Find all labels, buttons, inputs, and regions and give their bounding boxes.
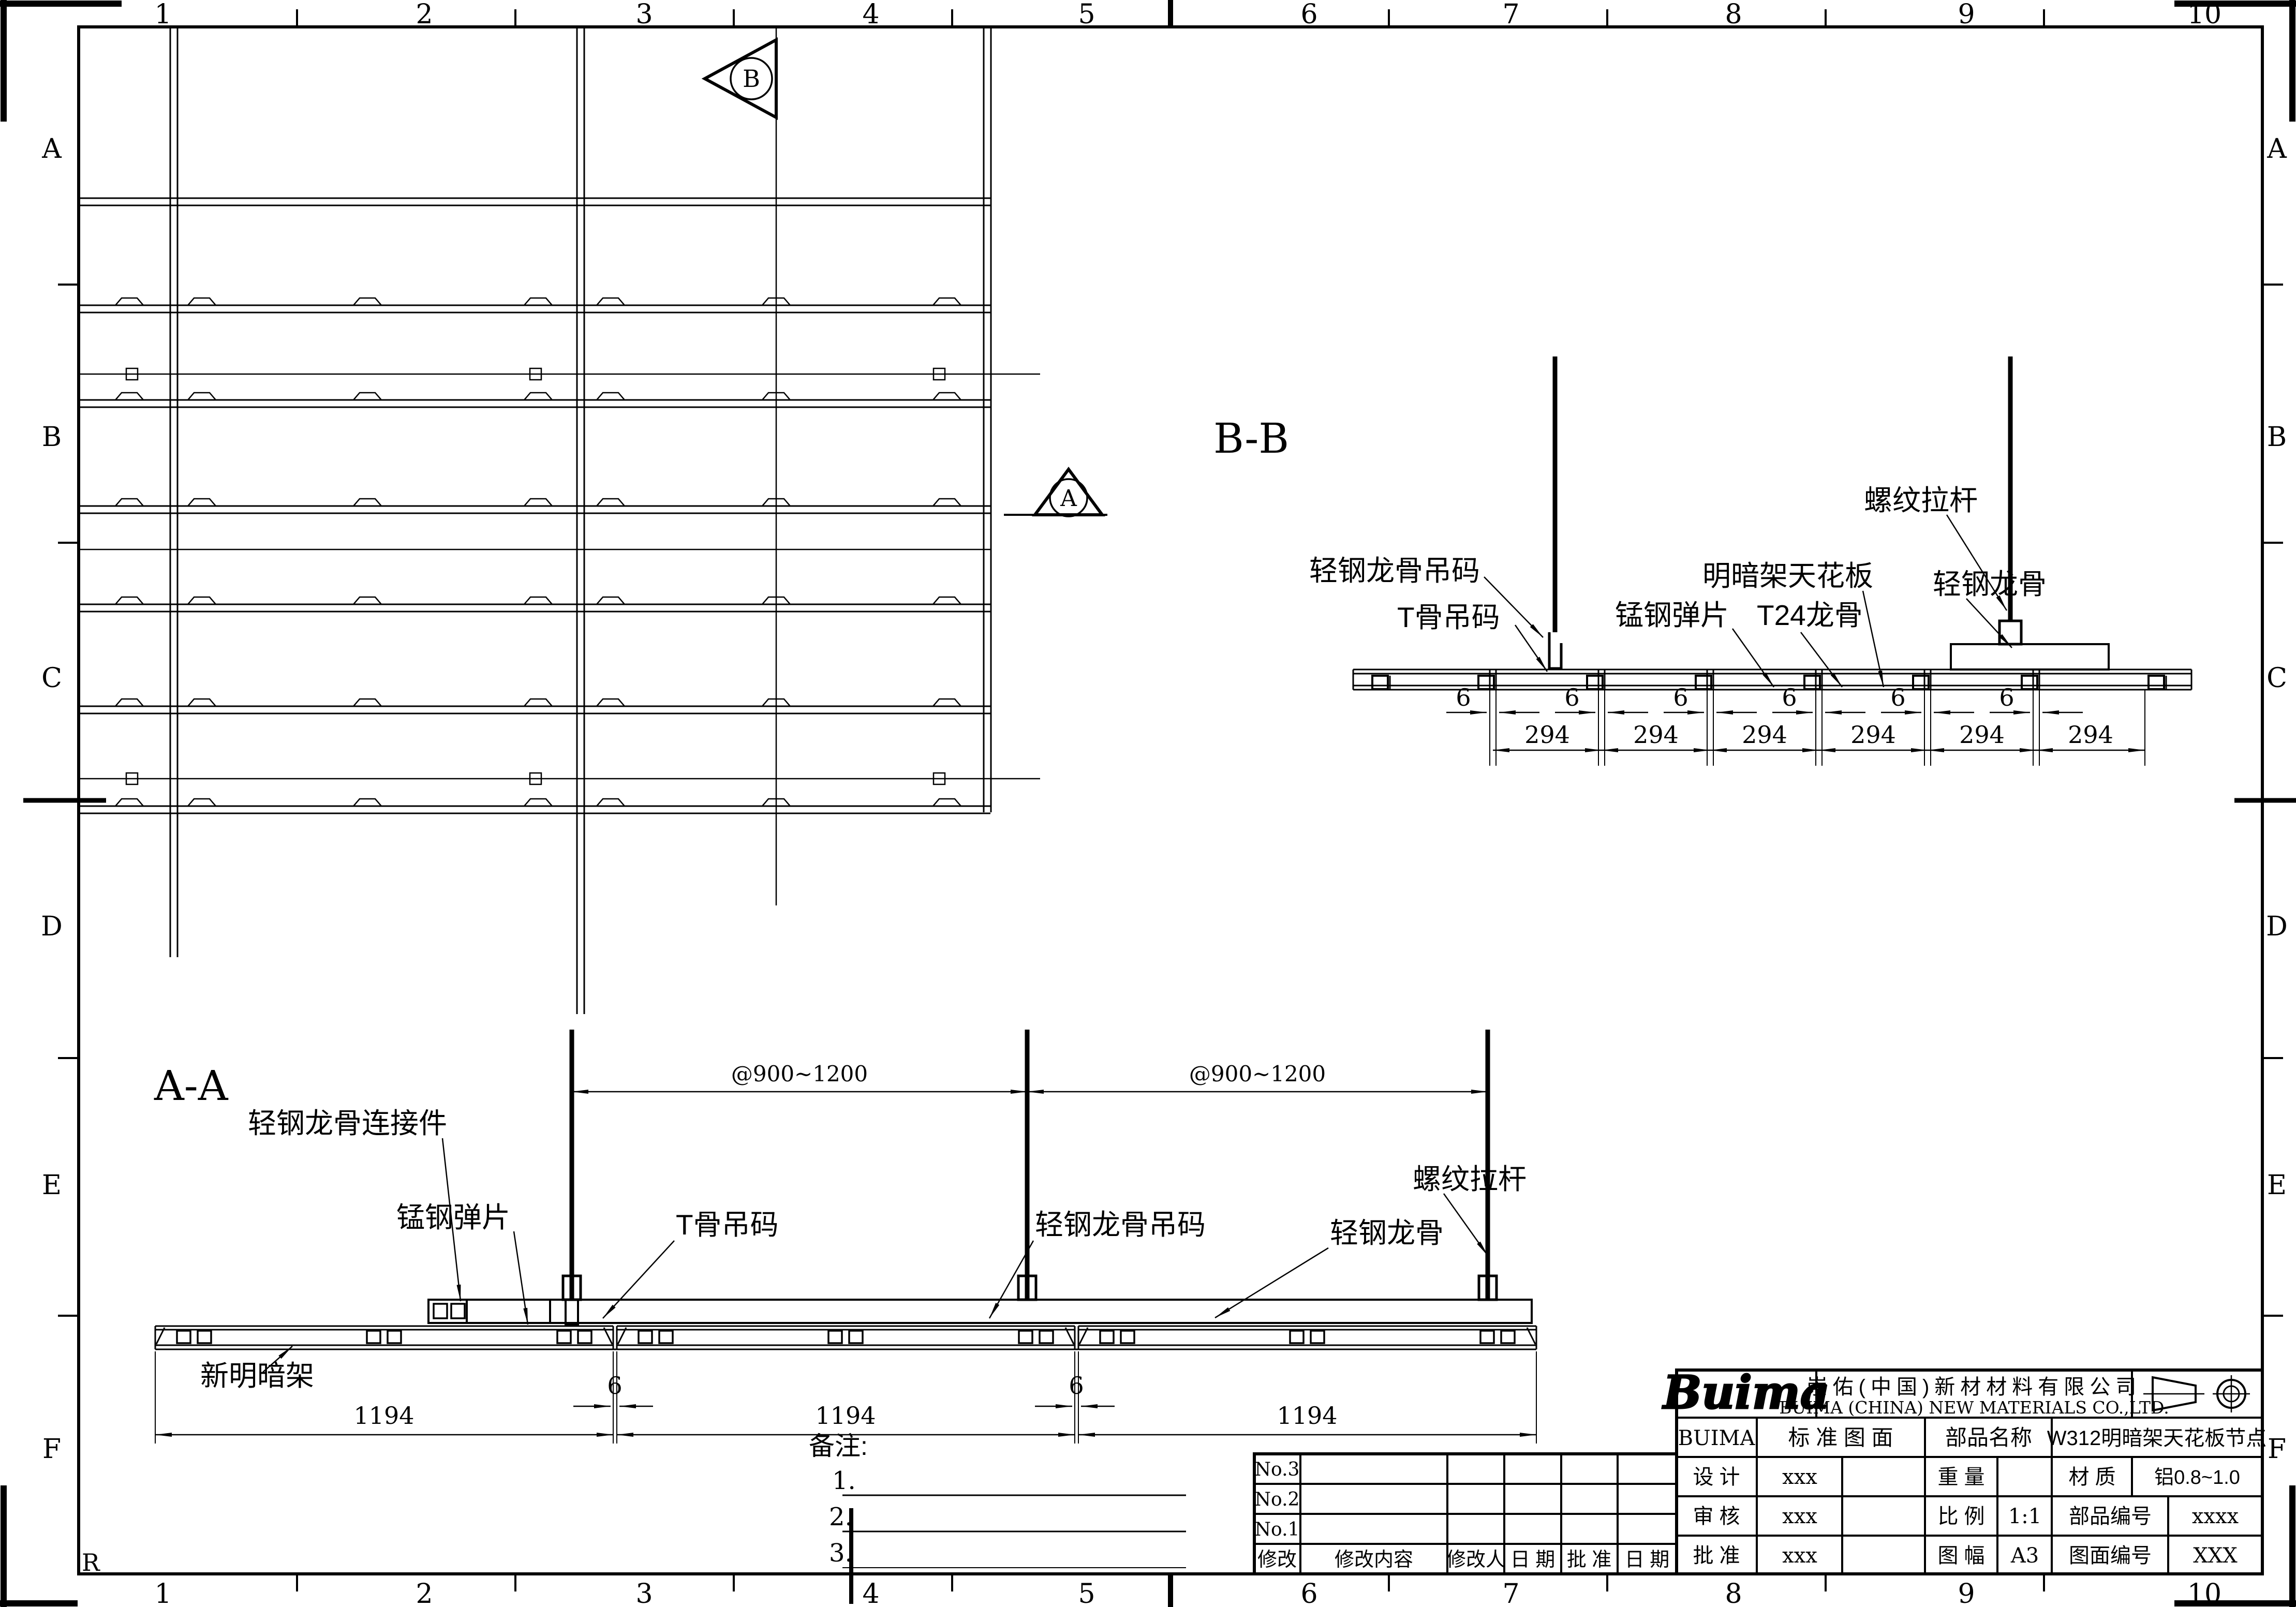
dim-text-6: 6 — [1999, 683, 2014, 711]
zone-col-label: 3 — [635, 0, 653, 30]
zone-row-label: E — [42, 1170, 62, 1201]
notes-title: 备注: — [809, 1432, 868, 1461]
note-item: 1. — [832, 1466, 856, 1495]
section-bb: B-B — [1213, 356, 2191, 766]
zone-col-label: 2 — [416, 0, 433, 30]
bb-label-t24: T24龙骨 — [1757, 599, 1863, 631]
zone-col-label: 9 — [1958, 0, 1975, 30]
bb-label-keel: 轻钢龙骨 — [1933, 568, 2047, 600]
revision-header: 修改 — [1257, 1549, 1297, 1571]
zone-row-label: B — [2267, 422, 2287, 453]
revision-header: 修改内容 — [1335, 1549, 1413, 1571]
aa-title: A-A — [154, 1062, 229, 1110]
tb-scale-label: 比 例 — [1937, 1505, 1984, 1528]
zone-col-label: 1 — [154, 0, 171, 30]
zone-col-label: 4 — [862, 1579, 879, 1607]
bb-dim-texts: 6 6 6 6 6 6 294 294 294 294 294 294 — [1456, 683, 2113, 749]
aa-label-connector: 轻钢龙骨连接件 — [248, 1107, 447, 1139]
zone-col-label: 2 — [416, 1579, 433, 1607]
zone-col-label: 7 — [1502, 0, 1519, 30]
zone-col-label: 5 — [1078, 0, 1095, 30]
revision-row: No.1 — [1255, 1519, 1300, 1540]
zone-col-label: 6 — [1300, 1579, 1317, 1607]
tb-part-no-label: 部品编号 — [2069, 1505, 2152, 1528]
bb-label-rod: 螺纹拉杆 — [1864, 484, 1978, 516]
section-aa: A-A — [154, 1030, 1536, 1444]
drawing-frame: 1 2 3 4 5 6 7 8 9 10 1 2 3 4 5 6 7 8 9 1… — [0, 0, 2296, 1607]
zone-col-label: 6 — [1300, 0, 1317, 30]
dim-text-294: 294 — [1633, 721, 1679, 749]
bb-label-t-hanger: T骨吊码 — [1397, 601, 1500, 633]
section-marker-a-letter: A — [1060, 485, 1077, 512]
dim-text-6: 6 — [1564, 683, 1579, 711]
corner-r-mark: R — [82, 1549, 100, 1576]
zone-row-labels: A B C D E F A B C D E F — [41, 133, 2288, 1465]
dim-text-spacing: @900~1200 — [1189, 1061, 1326, 1087]
zone-ticks — [23, 0, 2296, 1607]
dim-text-294: 294 — [1959, 721, 2005, 749]
zone-row-label: F — [42, 1434, 61, 1465]
dim-text-1194: 1194 — [1277, 1402, 1337, 1430]
dim-text-294: 294 — [1850, 721, 1896, 749]
aa-keel — [428, 1300, 1532, 1323]
tb-material-label: 材 质 — [2068, 1466, 2115, 1489]
dim-text-6: 6 — [1456, 683, 1471, 711]
revision-row: No.2 — [1255, 1489, 1300, 1510]
zone-col-label: 10 — [2187, 0, 2221, 30]
aa-label-keel-hanger: 轻钢龙骨吊码 — [1035, 1209, 1206, 1241]
tb-approve-label: 批 准 — [1693, 1544, 1740, 1567]
company-name-en: BUIMA (CHINA) NEW MATERIALS CO.,LTD. — [1779, 1397, 2169, 1418]
revision-row: No.3 — [1255, 1459, 1300, 1480]
zone-col-label: 4 — [862, 0, 879, 30]
revision-header: 日 期 — [1625, 1549, 1670, 1571]
plan-hanger-squares — [126, 368, 945, 784]
aa-label-keel: 轻钢龙骨 — [1330, 1217, 1444, 1249]
dim-text-6: 6 — [1782, 683, 1797, 711]
tb-material-value: 铝0.8~1.0 — [2154, 1467, 2240, 1489]
section-marker-a: A — [1004, 469, 1107, 516]
zone-col-label: 3 — [635, 1579, 653, 1607]
dim-text-1194: 1194 — [353, 1402, 414, 1430]
revision-header: 批 准 — [1567, 1549, 1612, 1571]
tb-std-label: 标 准 图 面 — [1788, 1425, 1893, 1450]
revision-headers: 修改 修改内容 修改人 日 期 批 准 日 期 — [1257, 1549, 1669, 1571]
trim-marks — [0, 0, 2296, 1607]
zone-col-label: 1 — [154, 1579, 171, 1607]
zone-row-label: A — [2267, 133, 2287, 165]
aa-extension-lines — [155, 1351, 1536, 1444]
zone-row-label: A — [41, 133, 62, 165]
title-block: Buima 崇佑(中国)新材材料有限公司 BUIMA (CHINA) NEW M… — [1662, 1365, 2267, 1574]
revision-table: No.3 No.2 No.1 修改 修改内容 修改人 日 期 批 准 日 期 — [1254, 1454, 1677, 1574]
tb-weight-label: 重 量 — [1937, 1466, 1984, 1489]
tb-check-value: xxx — [1782, 1505, 1817, 1528]
section-marker-b-letter: B — [743, 65, 760, 93]
tb-part-name: W312明暗架天花板节点 — [2047, 1427, 2267, 1450]
dim-text-294: 294 — [1524, 721, 1570, 749]
zone-col-label: 10 — [2187, 1579, 2221, 1607]
dim-text-1194: 1194 — [815, 1402, 876, 1430]
dim-text-6: 6 — [1069, 1372, 1084, 1400]
zone-col-label: 9 — [1958, 1579, 1975, 1607]
note-item: 2. — [829, 1502, 853, 1531]
aa-label-new-panel: 新明暗架 — [200, 1360, 314, 1392]
aa-leaders — [263, 1138, 1488, 1372]
revision-header: 修改人 — [1446, 1549, 1505, 1571]
dim-text-6: 6 — [1673, 683, 1688, 711]
bb-title: B-B — [1213, 414, 1289, 463]
bb-label-spring: 锰钢弹片 — [1615, 599, 1729, 631]
tb-approve-value: xxx — [1782, 1544, 1817, 1568]
bb-leaders — [1484, 515, 2012, 687]
zone-col-label: 7 — [1502, 1579, 1519, 1607]
zone-column-labels: 1 2 3 4 5 6 7 8 9 10 1 2 3 4 5 6 7 8 9 1… — [154, 0, 2221, 1607]
zone-col-label: 8 — [1725, 1579, 1742, 1607]
revision-row-labels: No.3 No.2 No.1 — [1255, 1459, 1300, 1540]
zone-col-label: 5 — [1078, 1579, 1095, 1607]
drawing-sheet: 1 2 3 4 5 6 7 8 9 10 1 2 3 4 5 6 7 8 9 1… — [0, 0, 2296, 1607]
dim-text-6: 6 — [607, 1372, 622, 1400]
tb-dwg-no-value: XXX — [2193, 1544, 2238, 1568]
aa-panels — [155, 1326, 1536, 1349]
zone-row-label: E — [2267, 1170, 2287, 1201]
zone-col-label: 8 — [1725, 0, 1742, 30]
aa-dim-texts: @900~1200 @900~1200 1194 1194 1194 6 6 — [353, 1061, 1337, 1430]
tb-check-label: 审 核 — [1693, 1505, 1740, 1528]
dim-text-294: 294 — [1742, 721, 1787, 749]
tb-design-label: 设 计 — [1693, 1466, 1740, 1489]
tb-scale-value: 1:1 — [2008, 1505, 2041, 1528]
zone-row-label: C — [41, 663, 62, 694]
zone-row-label: B — [42, 422, 62, 453]
ceiling-plan-view — [79, 28, 1040, 1014]
revision-header: 日 期 — [1510, 1549, 1556, 1571]
notes-block: 备注: 1. 2. 3. — [809, 1432, 1186, 1568]
dim-text-spacing: @900~1200 — [731, 1061, 868, 1087]
company-name-cn: 崇佑(中国)新材材料有限公司 — [1807, 1376, 2142, 1398]
zone-row-label: D — [41, 911, 63, 942]
dim-text-294: 294 — [2068, 721, 2113, 749]
aa-label-t-hanger: T骨吊码 — [676, 1209, 779, 1241]
tb-dwg-no-label: 图面编号 — [2069, 1544, 2152, 1567]
bb-extension-lines — [1490, 690, 2145, 766]
bb-label-keel-hanger: 轻钢龙骨吊码 — [1309, 555, 1480, 587]
zone-row-label: D — [2266, 911, 2288, 942]
zone-row-label: C — [2267, 663, 2287, 694]
tb-design-value: xxx — [1782, 1465, 1817, 1489]
note-item: 3. — [829, 1539, 853, 1568]
tb-size-label: 图 幅 — [1937, 1544, 1984, 1567]
aa-label-spring: 锰钢弹片 — [396, 1201, 510, 1233]
dim-text-6: 6 — [1890, 683, 1905, 711]
section-marker-b: B — [705, 40, 776, 117]
tb-part-no-value: xxxx — [2192, 1505, 2239, 1528]
tb-part-name-label: 部品名称 — [1945, 1425, 2032, 1450]
tb-size-value: A3 — [2010, 1544, 2039, 1568]
tb-brand: BUIMA — [1678, 1426, 1756, 1450]
zone-row-label: F — [2268, 1434, 2286, 1465]
bb-label-panel: 明暗架天花板 — [1702, 560, 1873, 592]
aa-label-rod: 螺纹拉杆 — [1413, 1163, 1527, 1195]
bb-labels: 轻钢龙骨吊码 T骨吊码 锰钢弹片 明暗架天花板 T24龙骨 轻钢龙骨 螺纹拉杆 — [1309, 484, 2047, 633]
